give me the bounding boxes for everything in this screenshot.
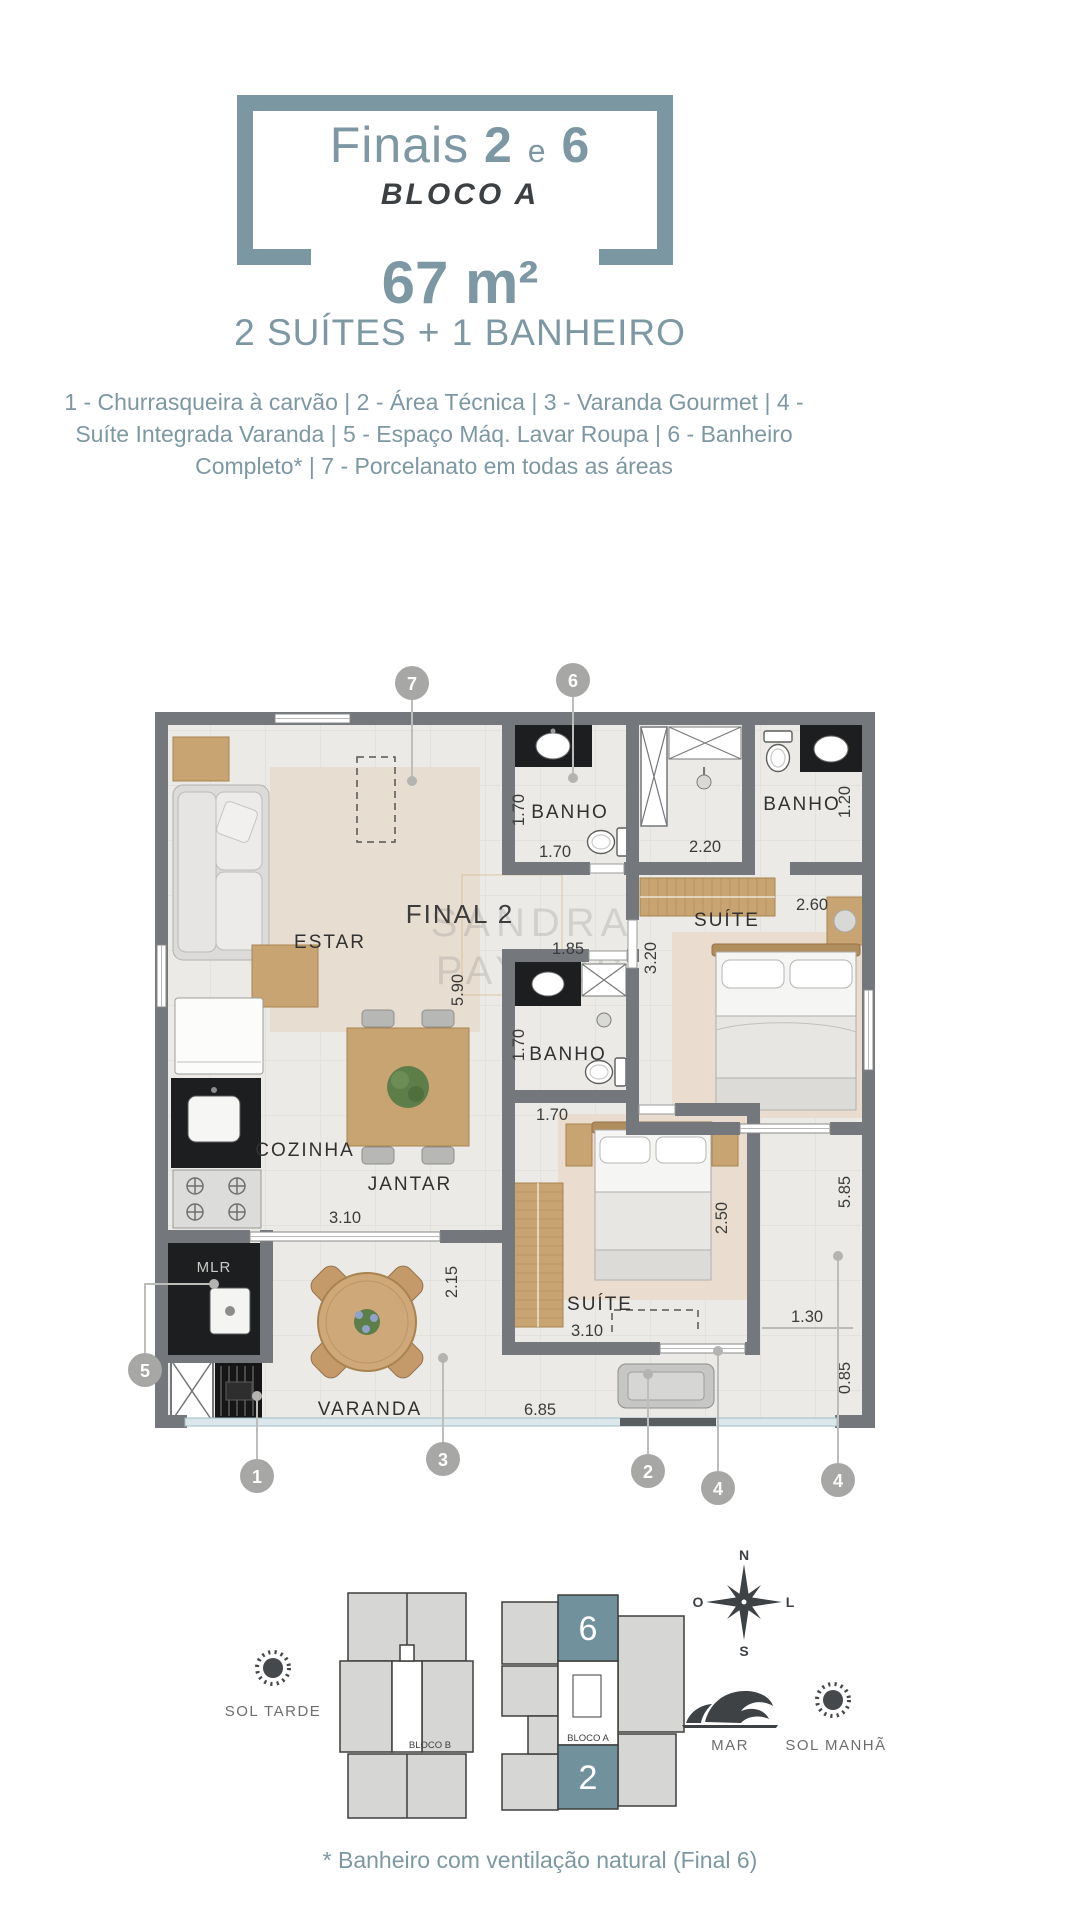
compass-o: O — [693, 1594, 704, 1610]
svg-text:6: 6 — [568, 671, 578, 691]
dim-right-side: 5.85 — [836, 1176, 854, 1208]
svg-text:5: 5 — [140, 1361, 150, 1381]
svg-text:2: 2 — [643, 1462, 653, 1482]
room-label-banho3: BANHO — [763, 794, 841, 815]
fridge — [175, 998, 263, 1074]
room-label-banho2: BANHO — [529, 1044, 607, 1065]
coffee-table — [252, 945, 318, 1007]
bloco-b-label: BLOCO B — [409, 1740, 451, 1751]
dim-suite1-depth: 3.20 — [642, 942, 660, 974]
dim-kitchen-window: 3.10 — [329, 1209, 361, 1227]
side-table — [173, 737, 229, 781]
marker-5: 5 — [128, 1353, 162, 1387]
marker-7: 7 — [395, 666, 429, 700]
gourmet-bench — [618, 1364, 714, 1408]
compass-l: L — [786, 1594, 795, 1610]
marker-3: 3 — [426, 1442, 460, 1476]
title-conjunction: e — [528, 133, 547, 169]
svg-text:4: 4 — [833, 1471, 843, 1491]
suite2-wardrobe — [513, 1183, 563, 1327]
dim-suite1-wardrobe: 2.60 — [796, 896, 828, 914]
sun-afternoon-label: SOL TARDE — [225, 1703, 322, 1720]
unit-configuration: 2 SUÍTES + 1 BANHEIRO — [20, 312, 900, 354]
flyer-page: Finais 2 e 6 BLOCO A 67 m² 2 SUÍTES + 1 … — [0, 0, 1080, 1920]
compass-icon — [706, 1564, 782, 1640]
dim-hall: 1.85 — [552, 940, 584, 958]
svg-text:3: 3 — [438, 1450, 448, 1470]
unit-label: FINAL 2 — [406, 899, 514, 929]
glass-railing — [185, 1418, 837, 1426]
charcoal-grill — [215, 1360, 262, 1422]
footnote: * Banheiro com ventilação natural (Final… — [0, 1847, 1080, 1874]
room-label-cozinha: COZINHA — [255, 1140, 355, 1161]
dim-varanda-depth: 2.15 — [443, 1266, 461, 1298]
unit-2-label: 2 — [579, 1759, 598, 1797]
stove — [173, 1170, 261, 1228]
suite1-nightstand — [827, 897, 863, 945]
suite2-nightstand-left — [566, 1124, 592, 1166]
dim-shower-room: 2.20 — [689, 838, 721, 856]
room-label-jantar: JANTAR — [368, 1174, 452, 1195]
marker-1: 1 — [240, 1459, 274, 1493]
room-label-suite2: SUÍTE — [567, 1294, 633, 1315]
feature-list: 1 - Churrasqueira à carvão | 2 - Área Té… — [60, 386, 808, 482]
sun-afternoon-icon — [257, 1652, 289, 1684]
closet-panel — [641, 727, 667, 826]
sun-morning-label: SOL MANHÃ — [785, 1737, 886, 1754]
dim-banho1-width: 1.70 — [539, 843, 571, 861]
varanda-table-set — [307, 1262, 427, 1382]
key-plan-figure: SOL TARDE BLOCO B 6 2 BLOCO A — [130, 1540, 950, 1840]
compass-n: N — [739, 1547, 749, 1563]
svg-text:1: 1 — [252, 1467, 262, 1487]
marker-2: 2 — [631, 1454, 665, 1488]
dim-banho1-depth: 1.70 — [510, 794, 528, 826]
floor-plan-figure: SANDRA PAYZOS — [100, 620, 980, 1520]
laundry-area: MLR — [168, 1243, 260, 1355]
marker-6: 6 — [556, 663, 590, 697]
dim-banho2-depth: 1.70 — [510, 1029, 528, 1061]
suite1-bed — [712, 944, 860, 1110]
suite2-bed — [592, 1122, 714, 1280]
bloco-b-footprint — [340, 1593, 473, 1818]
title-prefix: Finais — [330, 117, 469, 173]
room-label-banho1: BANHO — [531, 802, 609, 823]
dim-banho3: 1.20 — [836, 786, 854, 818]
compass-s: S — [739, 1643, 748, 1659]
room-label-varanda: VARANDA — [318, 1399, 422, 1420]
svg-text:4: 4 — [713, 1479, 723, 1499]
block-subtitle: BLOCO A — [20, 178, 900, 212]
svg-text:7: 7 — [407, 674, 417, 694]
area-value: 67 m² — [20, 248, 900, 317]
sofa — [173, 785, 269, 960]
title-num-left: 2 — [484, 117, 513, 173]
room-label-estar: ESTAR — [294, 932, 366, 953]
kitchen-counter — [171, 1078, 261, 1168]
service-shaft — [171, 1360, 213, 1422]
title-num-right: 6 — [561, 117, 590, 173]
marker-4a: 4 — [701, 1471, 735, 1505]
unit-6-label: 6 — [579, 1610, 598, 1648]
marker-4b: 4 — [821, 1463, 855, 1497]
dim-suite2-depth: 2.50 — [713, 1202, 731, 1234]
dim-living-depth: 5.90 — [449, 974, 467, 1006]
room-label-suite1: SUÍTE — [694, 910, 760, 931]
sun-morning-icon — [817, 1684, 849, 1716]
dim-varanda-length: 6.85 — [524, 1401, 556, 1419]
sea-label: MAR — [711, 1737, 749, 1754]
dining-set — [347, 1010, 469, 1164]
dim-suite2-width: 3.10 — [571, 1322, 603, 1340]
page-title: Finais 2 e 6 — [20, 116, 900, 174]
dim-right-varanda-width: 1.30 — [791, 1308, 823, 1326]
bloco-a-label: BLOCO A — [567, 1733, 609, 1744]
dim-banho2-width: 1.70 — [536, 1106, 568, 1124]
sea-icon — [682, 1691, 778, 1728]
room-label-mlr: MLR — [197, 1259, 232, 1276]
